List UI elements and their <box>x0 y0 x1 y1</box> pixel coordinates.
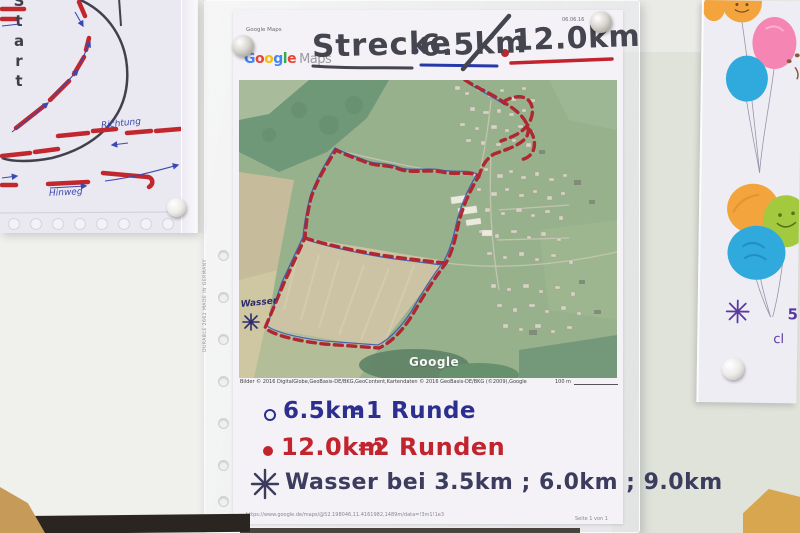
title-distance-long: 12.0km <box>511 19 640 58</box>
print-header-app: Google Maps <box>246 27 282 33</box>
start-label: Start <box>10 0 28 87</box>
ring-bullet <box>264 409 276 421</box>
water-star-icon <box>250 468 280 500</box>
map-scale: 100 m <box>555 379 618 385</box>
outbound-label: Hinweg <box>49 187 83 199</box>
strecke-underline <box>313 66 412 68</box>
balloons-drawing: 5 cl <box>698 0 800 403</box>
sketch-drawing <box>0 0 197 233</box>
note3-text: Wasser bei 3.5km ; 6.0km ; 9.0km <box>285 470 723 495</box>
punch-hole <box>218 292 229 303</box>
punch-hole <box>218 418 229 429</box>
logo-letter: o <box>264 51 273 67</box>
punch-hole <box>218 376 229 387</box>
note2-equals: = <box>357 437 373 458</box>
punch-holes-row <box>9 219 174 230</box>
left-sketch-page: Start Richtung Hinweg <box>0 0 197 233</box>
partial-note-text: cl <box>773 332 784 347</box>
shelf-shadow-sliver <box>240 528 580 533</box>
footer-url: https://www.google.de/maps/@52.198046,11… <box>246 512 444 518</box>
photo-scene: Start Richtung Hinweg DURABLE 2662 MADE … <box>0 0 800 533</box>
map-caption-row: Bilder © 2016 DigitalGlobe,GeoBasis-DE/B… <box>240 379 618 385</box>
punch-hole <box>218 250 229 261</box>
water-star-icon <box>727 300 749 322</box>
pushpin-right-page <box>722 358 744 380</box>
dot-bullet <box>263 446 273 456</box>
logo-letter: e <box>287 51 296 67</box>
map-scale-bar <box>574 380 618 385</box>
pushpin-main-top-right <box>590 11 612 33</box>
note1-laps: 1 Runde <box>366 398 476 424</box>
balloon-small-orange <box>703 0 725 21</box>
map-attribution: Bilder © 2016 DigitalGlobe,GeoBasis-DE/B… <box>240 379 527 385</box>
short-underline <box>421 65 497 66</box>
pushpin-left-page <box>167 198 186 217</box>
logo-letter: g <box>273 51 283 67</box>
pushpin-main-top-left <box>232 35 254 57</box>
punch-hole <box>218 334 229 345</box>
logo-letter: o <box>255 51 264 67</box>
water-star-icon <box>243 314 259 330</box>
balloon-orange-top <box>722 0 763 23</box>
sleeve-brand-label: DURABLE 2662 MADE IN GERMANY <box>203 262 213 352</box>
note2-laps: 2 Runden <box>373 433 505 461</box>
map-scale-label: 100 m <box>555 379 571 385</box>
wall-white-area <box>0 233 206 533</box>
start-line <box>119 0 121 26</box>
footer-page-label: Seite 1 von 1 <box>575 516 608 522</box>
punch-hole <box>218 460 229 471</box>
punch-hole <box>218 496 229 507</box>
right-balloons-page: 5 cl <box>696 0 800 403</box>
page-bottom-edge <box>0 212 180 213</box>
partial-note-text: 5 <box>787 305 798 323</box>
route-map-satellite: Wasser Google Google <box>239 80 617 378</box>
google-watermark: Google <box>409 355 459 369</box>
note1-equals: = <box>350 402 365 422</box>
red-route-dashes <box>2 2 180 187</box>
plastic-sleeve-edge <box>181 0 198 233</box>
